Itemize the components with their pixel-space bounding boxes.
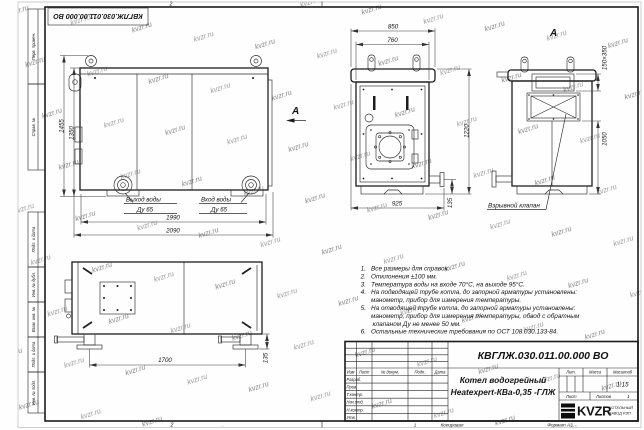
dim-pipe-offset: 135 [447, 197, 454, 208]
scale-label: Масштаб [613, 369, 633, 374]
note-line: Все размеры для справок. [371, 265, 449, 273]
svg-text:Выход воды: Выход воды [126, 197, 161, 204]
drawing-sheet: kvzr.ru kvzr.ru 2 2 Перв. примен. Справ.… [0, 0, 644, 430]
dim-leg-span: 1700 [158, 357, 172, 364]
view-arrow-label: А [291, 106, 299, 117]
dim-valve-height: 1050 [602, 132, 609, 146]
note-line: Остальные технические требования по ОСТ … [371, 328, 558, 336]
fold-mark-bottom: 2 [170, 423, 174, 429]
copied-label: Копировал [441, 423, 464, 428]
dim-height: 1220 [464, 124, 471, 138]
logo-text: KVZR [577, 404, 612, 419]
mass-label: Масса [589, 369, 602, 374]
company-line2: ЗАВОД РЭП [609, 412, 631, 416]
note-line: На отводящей трубе котла, до запорной ар… [371, 304, 576, 312]
fold-mark-top: 2 [169, 2, 173, 8]
kvzr-logo-icon [561, 404, 575, 419]
svg-text:Взрывной клапан: Взрывной клапан [488, 202, 540, 210]
col-podp: Подп. [415, 369, 426, 374]
sheets-label: Листов [595, 394, 612, 399]
note-line: Отклонения ±100 мм. [371, 273, 437, 280]
margin-label: Перв. примен. [31, 33, 36, 60]
note-number: 3. [361, 281, 366, 288]
note-line: Температура воды на входе 70°С, на выход… [371, 280, 525, 288]
dim-overall-width: 2090 [165, 228, 180, 235]
row-nkontr: Н.контр. [347, 407, 364, 412]
row-nachotd: Нач.отд. [347, 400, 364, 405]
dim-overall-height: 1455 [59, 119, 66, 133]
row-razrab: Разраб. [347, 377, 362, 382]
product-name-line1: Котел водогрейный [460, 375, 547, 385]
note-number: 6. [361, 329, 366, 336]
note-number: 5. [361, 305, 366, 312]
dim-cap-width: 850 [388, 24, 399, 31]
note-number: 4. [361, 289, 366, 296]
margin-label: Инв. № подл. [31, 380, 36, 405]
note-line: манометр, прибор для измерения температу… [371, 312, 580, 320]
format-label: Формат А3 [547, 423, 573, 428]
lit-label: Лит. [565, 369, 576, 374]
note-line: На подводящей трубе котла, до запорной а… [371, 288, 577, 296]
dim-body-height: 1350 [69, 126, 76, 140]
sheet-label: Лист [565, 394, 577, 399]
svg-text:Вход воды: Вход воды [201, 197, 231, 204]
note-number: 2. [360, 273, 366, 280]
col-dokum: № докум. [381, 369, 399, 374]
margin-label: Справ. № [31, 117, 36, 136]
rotated-doc-number: КВГЛЖ.030.011.00.000 ВО [53, 12, 143, 21]
col-izm: Изм [347, 369, 355, 374]
margin-label: Подп. и дата [31, 226, 36, 252]
row-tkontr: Т.контр. [347, 392, 364, 397]
dim-foot-height: 135 [263, 352, 270, 363]
note-line: клапаном Ду не менее 50 мм. [373, 321, 462, 328]
product-name-line2: Heatexpert-КВа-0,35 -ГЛЖ [451, 387, 557, 397]
svg-text:Ду 65: Ду 65 [136, 207, 154, 214]
margin-label: Подп. и дата [31, 341, 36, 367]
dim-body-width: 760 [387, 37, 398, 44]
dim-flue-size: 150×350 [602, 45, 609, 70]
row-utv: Утв. [347, 415, 356, 420]
col-data: Дата [434, 369, 447, 374]
note-line: манометр, прибор для измерения температу… [371, 296, 521, 304]
col-list: Лист [358, 369, 370, 374]
margin-label: Взам. инв. № [31, 306, 36, 332]
sheets-value: 1 [627, 394, 630, 399]
note-number: 1. [361, 266, 366, 273]
view-a-label: А [549, 28, 557, 39]
margin-label: Инв. № дубл. [31, 272, 36, 297]
dim-base-width: 925 [392, 201, 403, 208]
svg-text:Ду 65: Ду 65 [210, 207, 228, 214]
scale-value: 1:15 [616, 382, 629, 389]
company-line1: КОТЕЛЬНЫЙ [609, 406, 633, 410]
doc-number: КВГЛЖ.030.011.00.000 ВО [478, 350, 609, 362]
row-prov: Пров. [347, 385, 358, 390]
watermark-layer [18, 2, 641, 427]
zone-mark: 1 [414, 423, 417, 428]
dim-inner-width: 1990 [166, 215, 180, 222]
boiler-technical-drawing: kvzr.ru kvzr.ru 2 2 Перв. примен. Справ.… [0, 0, 644, 430]
